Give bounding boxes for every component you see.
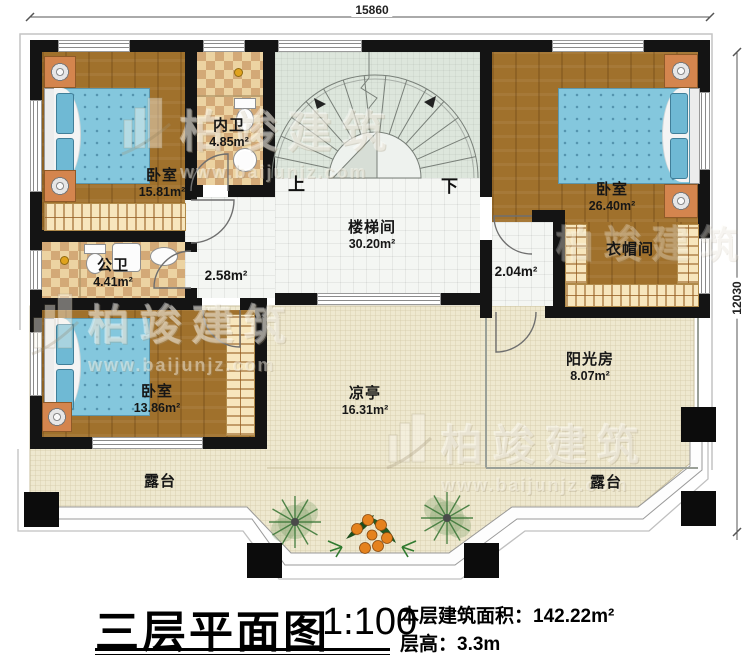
watermark-brand: 柏竣建筑 [441,412,649,473]
column [681,407,716,442]
wall-bedroom3-left-a [30,318,42,332]
column [247,543,282,578]
wall-bedroom2-bottom-stub [532,210,565,222]
wardrobe-cloak-left [565,224,587,284]
window-bedroom1-top [58,40,130,52]
label-hall-204: 2.04m² [495,264,538,279]
room-name: 露台 [590,475,622,492]
room-name: 阳光房 [566,352,614,369]
floor-height-value: 3.3m [457,634,500,655]
label-bedroom2: 卧室 26.40m² [589,182,636,213]
nightstand-lamp [42,402,72,432]
wall-cloak-bottom [545,306,710,318]
room-area: 30.20m² [348,237,396,251]
bed-bedroom2 [558,88,698,182]
window-bedroom2-top [552,40,644,52]
room-area: 8.07m² [566,369,614,383]
stair-down-label: 下 [441,172,458,197]
bed-pillow [670,138,688,179]
door-sunroom [496,312,536,352]
wall-bedroom2-left-a [480,52,492,197]
sink [233,148,257,172]
column [681,491,716,526]
floor-area-info: 本层建筑面积：142.22m² [400,601,614,628]
window-cloak-right [698,238,710,294]
nightstand-lamp [44,170,76,202]
wall-bedroom3-top-a [30,298,202,310]
label-hall-258: 2.58m² [205,268,248,283]
label-bedroom1: 卧室 15.81m² [139,168,186,199]
label-terrace-left: 露台 [144,474,176,491]
column [464,543,499,578]
label-cloakroom: 衣帽间 [606,242,654,259]
room-name: 卧室 [134,384,181,401]
bed-bedroom1 [44,88,148,182]
wardrobe-bedroom3 [226,314,255,436]
window-bedroom1-left [30,100,42,192]
floor-plan-canvas: 柏竣建筑 www.baijunjz.com 柏竣建筑 www.baijunjz.… [0,0,750,664]
wall-pbath-hall-b [185,288,197,298]
label-bedroom3: 卧室 13.86m² [134,384,181,415]
wardrobe-cloak-right [677,224,699,284]
room-name: 卧室 [139,168,186,185]
window-bedroom3-bottom [92,437,203,449]
label-terrace-right: 露台 [590,475,622,492]
sunroom-glass-walls [486,318,698,468]
dimension-top: 15860 [351,3,392,17]
window-bath-top [203,40,245,52]
wall-bedroom1-bath [185,52,197,200]
shower-knob [60,256,69,265]
room-name: 公卫 [93,258,133,275]
pine-plant [421,492,473,544]
floor-stair-fan [275,52,480,178]
bed-pillow [56,324,74,365]
wall-bedroom2-left-b [480,240,492,318]
room-area: 4.85m² [209,135,249,149]
room-area: 2.04m² [495,264,538,279]
wall-bath-stair [263,52,275,185]
room-name: 卧室 [589,182,636,199]
wardrobe-bedroom1 [44,203,186,231]
window-bedroom3-left [30,332,42,396]
room-name: 内卫 [209,118,249,135]
nightstand-lamp [44,56,76,88]
label-sunroom: 阳光房 8.07m² [566,352,614,383]
room-area: 13.86m² [134,401,181,415]
wall-bedroom3-right [255,310,267,449]
bed-pillow [56,93,74,134]
shower-knob [234,68,243,77]
wall-stair-stub-right [441,293,480,305]
room-area: 4.41m² [93,275,133,289]
room-area: 2.58m² [205,268,248,283]
bed-pillow [670,93,688,134]
floor-area-value: 142.22m² [533,606,614,627]
fruit-plant [328,515,416,558]
wall-bath-bottom-a [185,185,203,197]
label-stairwell: 楼梯间 30.20m² [348,220,396,251]
wall-hall204-cloak [553,222,565,306]
window-stair-top [278,40,362,52]
title-underline [95,648,390,651]
pine-plant [269,496,321,548]
room-area: 16.31m² [342,403,389,417]
label-inner-bath: 内卫 4.85m² [209,118,249,149]
room-name: 楼梯间 [348,220,396,237]
wall-bedroom3-top-b [240,298,267,310]
wall-bath-bottom-b [228,185,275,197]
label-public-bath: 公卫 4.41m² [93,258,133,289]
wall-stair-stub-left [275,293,317,305]
window-pbath-left [30,250,42,290]
nightstand-lamp [664,54,698,88]
room-area: 26.40m² [589,199,636,213]
room-area: 15.81m² [139,185,186,199]
window-stair-pavilion [317,293,441,305]
brand-logo-icon [385,412,433,472]
nightstand-lamp [664,184,698,218]
bed-bedroom3 [44,318,148,414]
room-name: 衣帽间 [606,242,654,259]
floor-area-label: 本层建筑面积： [400,606,533,627]
stair-up-label: 上 [288,170,305,195]
column [24,492,59,527]
floor-height-label: 层高： [400,634,457,655]
wall-pbath-hall-a [185,242,197,252]
room-name: 凉亭 [342,386,389,403]
wall-bedroom1-bottom [42,230,185,242]
wall-bedroom3-bottom-b [203,437,267,449]
title-underline [95,654,390,655]
room-name: 露台 [144,474,176,491]
label-pavilion: 凉亭 16.31m² [342,386,389,417]
floor-height-info: 层高：3.3m [400,629,500,656]
wall-bedroom3-bottom-a [30,437,92,449]
sink [150,247,178,266]
wardrobe-cloak-bottom [565,284,699,307]
dimension-right: 12030 [730,277,744,318]
